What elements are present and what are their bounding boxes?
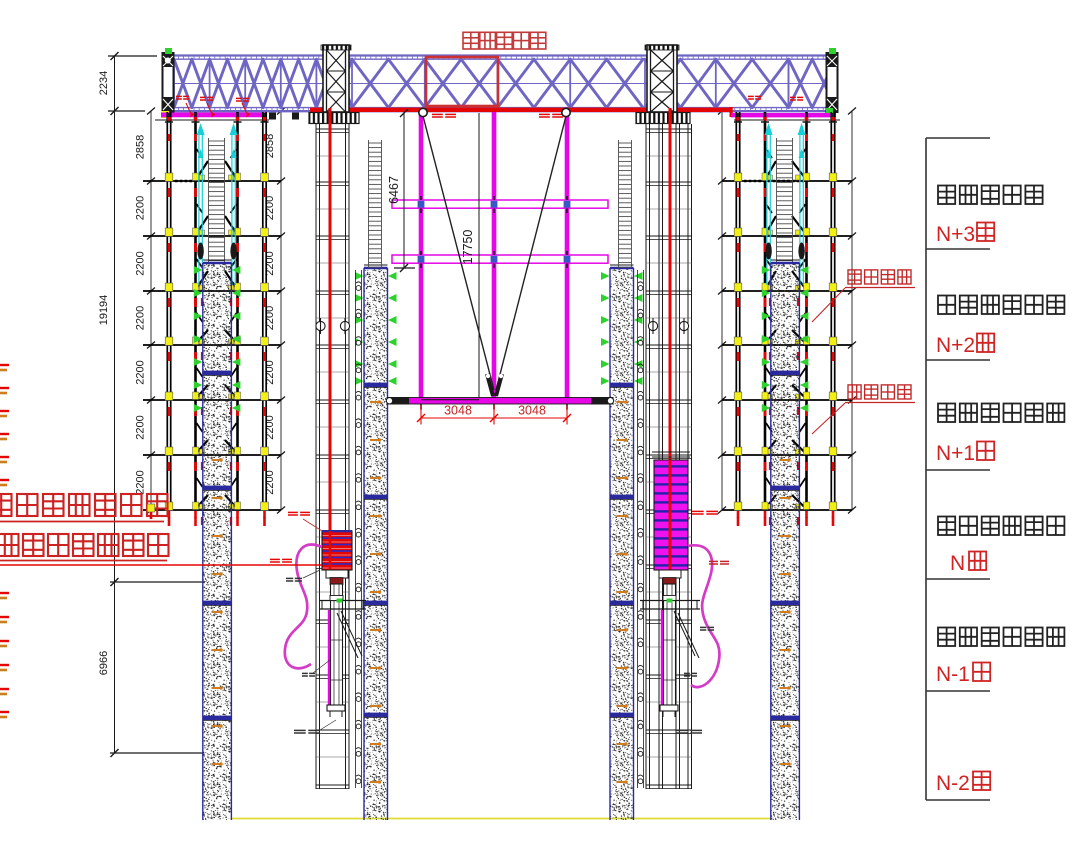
svg-text:2200: 2200 bbox=[135, 306, 147, 330]
svg-text:19194: 19194 bbox=[98, 295, 110, 326]
svg-text:2234: 2234 bbox=[98, 71, 110, 95]
svg-text:N-1: N-1 bbox=[936, 663, 970, 686]
svg-text:N+3: N+3 bbox=[936, 223, 975, 246]
svg-text:3048: 3048 bbox=[518, 404, 546, 418]
svg-text:2200: 2200 bbox=[135, 415, 147, 439]
svg-text:2200: 2200 bbox=[135, 251, 147, 275]
svg-text:N+1: N+1 bbox=[936, 442, 975, 465]
svg-text:2200: 2200 bbox=[135, 196, 147, 220]
svg-text:3048: 3048 bbox=[444, 404, 472, 418]
svg-text:N: N bbox=[950, 552, 965, 575]
svg-text:6966: 6966 bbox=[98, 651, 110, 675]
svg-text:N-2: N-2 bbox=[936, 772, 970, 795]
svg-text:6467: 6467 bbox=[387, 176, 401, 204]
svg-text:17750: 17750 bbox=[461, 230, 475, 265]
svg-text:2858: 2858 bbox=[135, 135, 147, 159]
svg-text:2200: 2200 bbox=[135, 470, 147, 494]
svg-text:2200: 2200 bbox=[135, 360, 147, 384]
svg-text:N+2: N+2 bbox=[936, 334, 975, 357]
